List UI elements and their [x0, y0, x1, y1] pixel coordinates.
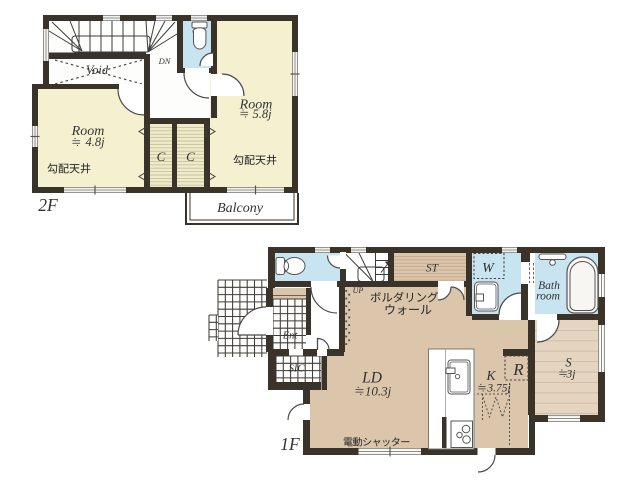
svg-text:3j: 3j — [566, 369, 576, 381]
svg-text:1F: 1F — [280, 434, 300, 454]
svg-text:K: K — [485, 368, 496, 383]
svg-text:DN: DN — [158, 56, 172, 66]
svg-text:2F: 2F — [38, 195, 58, 215]
svg-text:3.75j: 3.75j — [486, 383, 510, 395]
svg-text:room: room — [536, 291, 560, 303]
svg-text:4.8j: 4.8j — [85, 135, 105, 149]
svg-text:W: W — [482, 261, 495, 276]
svg-text:Balcony: Balcony — [217, 201, 264, 216]
svg-text:S: S — [565, 356, 572, 370]
svg-text:Void: Void — [86, 63, 109, 77]
svg-text:Ent: Ent — [282, 331, 299, 342]
svg-text:C: C — [186, 149, 195, 164]
svg-text:10.3j: 10.3j — [365, 384, 392, 399]
svg-text:C: C — [157, 149, 166, 164]
svg-text:UP: UP — [353, 286, 364, 295]
svg-text:5.8j: 5.8j — [252, 107, 272, 121]
svg-text:SIC: SIC — [289, 364, 306, 375]
svg-text:R: R — [512, 360, 524, 379]
svg-text:ST: ST — [426, 263, 440, 275]
